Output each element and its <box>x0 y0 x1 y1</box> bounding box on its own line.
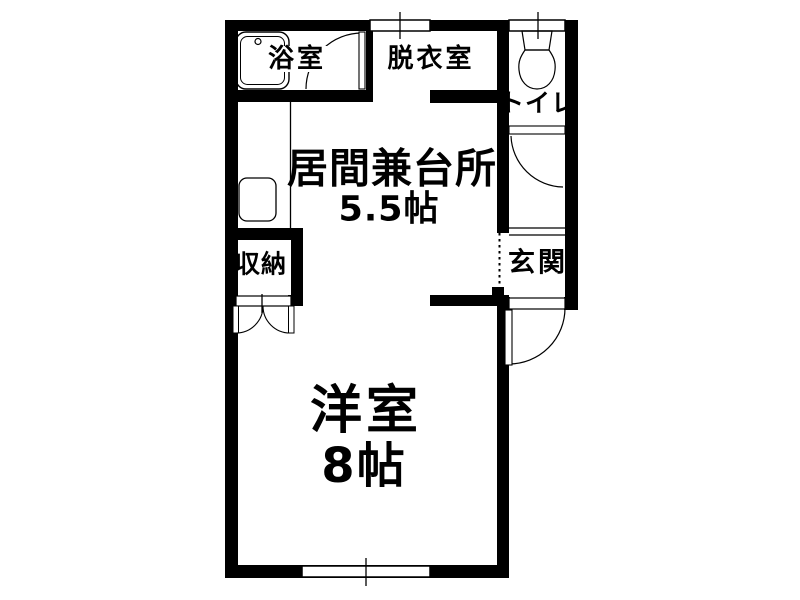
toilet-door-panel <box>509 126 565 134</box>
storage-double-doors <box>233 294 294 333</box>
window-toilet <box>509 12 565 39</box>
toilet-label: トイレ <box>499 91 577 116</box>
bathroom-label: 浴室 <box>266 46 328 72</box>
floor-plan: 浴室 脱衣室 トイレ 居間兼台所 5.5帖 玄関 収納 洋室 8帖 <box>0 0 800 600</box>
kitchen-counter <box>239 102 291 228</box>
storage-door-arc-right <box>263 306 290 333</box>
entrance-label: 玄関 <box>508 250 568 277</box>
living-kitchen-size: 5.5帖 <box>338 193 439 228</box>
western-room-size: 8帖 <box>321 442 406 490</box>
window-dressing <box>370 12 430 39</box>
toilet-icon <box>519 31 555 89</box>
bathroom-door-leaf <box>359 32 365 89</box>
entrance-door-leaf <box>505 310 512 365</box>
window-western-room <box>302 558 430 586</box>
storage-door-leaf-right <box>289 306 295 333</box>
toilet-door-arc <box>511 136 563 187</box>
dressing-room-label: 脱衣室 <box>387 46 474 72</box>
storage-label: 収納 <box>235 252 287 277</box>
bathtub-faucet-dot <box>255 39 261 45</box>
entrance-doorway <box>509 298 565 309</box>
wall-storage-right <box>291 228 303 306</box>
living-kitchen-label: 居間兼台所 <box>287 149 497 190</box>
floor-plan-linework <box>0 0 800 600</box>
wall-genkan-step-stub <box>492 287 504 301</box>
wall-genkan-bottom-r <box>564 297 578 310</box>
wall-bathroom-bottom <box>225 90 373 102</box>
storage-doorway <box>236 296 291 306</box>
entrance-door-arc <box>509 308 565 364</box>
kitchen-sink-icon <box>239 178 276 221</box>
storage-door-arc-left <box>236 306 263 333</box>
entrance-door <box>505 298 565 365</box>
genkan-step <box>509 228 565 235</box>
wall-hall-left <box>497 31 509 233</box>
wall-bath-dressing <box>366 31 373 91</box>
western-room-label: 洋室 <box>310 385 422 437</box>
storage-door-leaf-left <box>233 306 239 333</box>
toilet-door <box>509 126 565 187</box>
